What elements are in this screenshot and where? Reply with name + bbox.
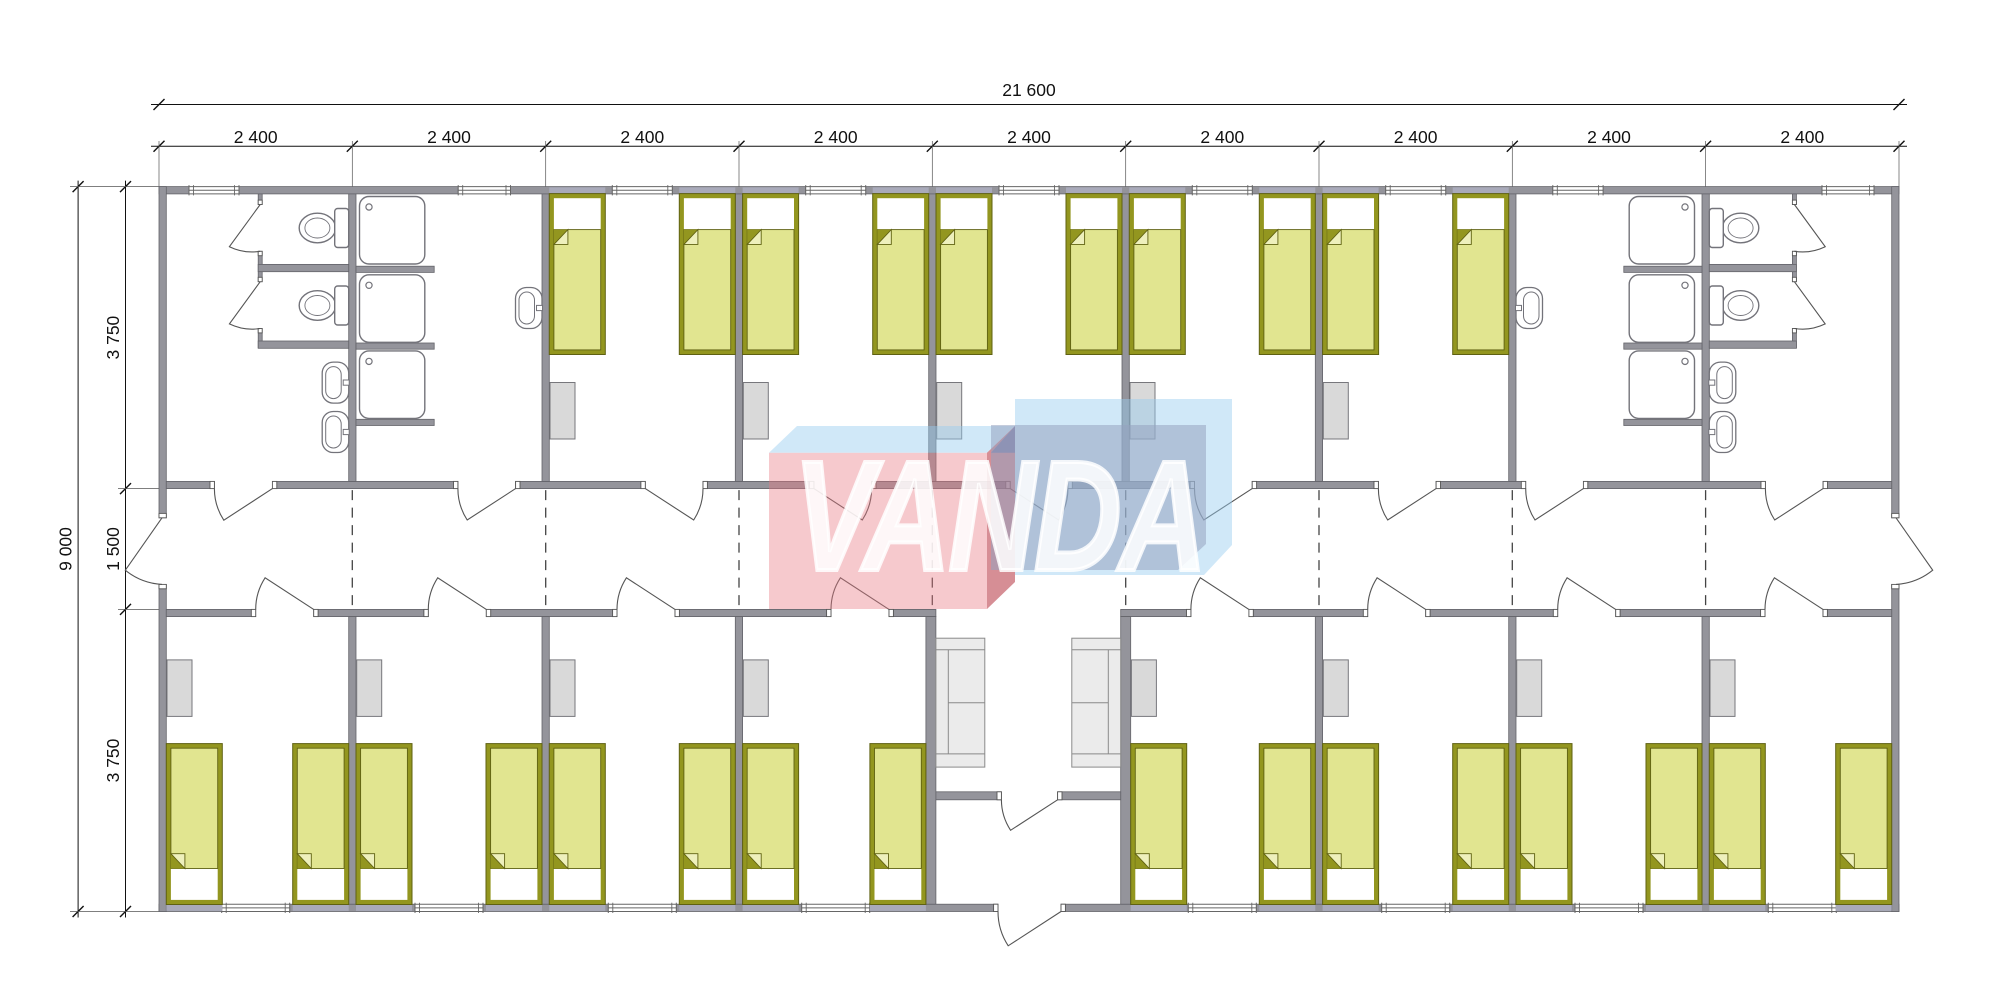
- svg-text:2 400: 2 400: [620, 127, 664, 147]
- svg-text:2 400: 2 400: [1587, 127, 1631, 147]
- svg-text:2 400: 2 400: [1200, 127, 1244, 147]
- svg-text:2 400: 2 400: [1007, 127, 1051, 147]
- svg-text:9 000: 9 000: [56, 527, 76, 571]
- svg-text:3 750: 3 750: [103, 315, 123, 359]
- svg-text:VANDA: VANDA: [793, 428, 1204, 604]
- svg-text:2 400: 2 400: [234, 127, 278, 147]
- svg-text:2 400: 2 400: [1780, 127, 1824, 147]
- svg-text:2 400: 2 400: [427, 127, 471, 147]
- svg-text:1 500: 1 500: [103, 527, 123, 571]
- svg-text:3 750: 3 750: [103, 738, 123, 782]
- svg-text:2 400: 2 400: [1394, 127, 1438, 147]
- svg-text:21 600: 21 600: [1002, 80, 1056, 100]
- svg-text:2 400: 2 400: [814, 127, 858, 147]
